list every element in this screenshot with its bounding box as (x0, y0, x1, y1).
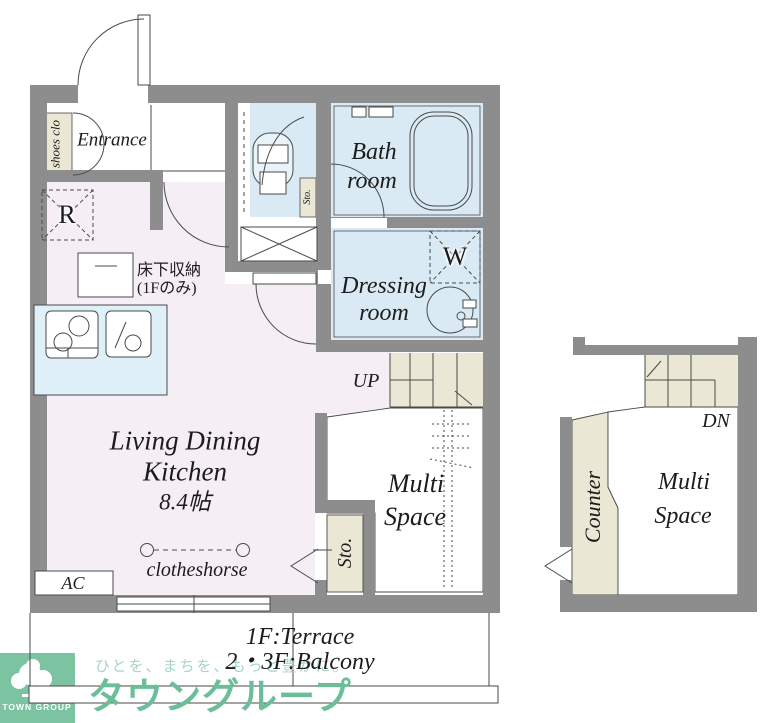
bathroom-label-1: Bath (351, 140, 396, 164)
ldk-size-label: 8.4帖 (159, 491, 211, 514)
ldk-label-1: Living Dining (110, 428, 261, 455)
logo-caption: TOWN GROUP (2, 702, 71, 712)
dressing-room-label-1: Dressing (341, 274, 427, 298)
entrance-label: Entrance (77, 131, 147, 150)
storage-closet-box (241, 227, 317, 261)
ac-label: AC (61, 574, 84, 592)
floorplan-page: ひとを、まちを、もっと豊かに。 タウングループ TOWN GROUP Entra… (0, 0, 775, 723)
dressing-room-label-2: room (359, 301, 409, 325)
ldk-label-2: Kitchen (143, 459, 227, 486)
storage-1f-label: Sto. (335, 538, 355, 569)
clotheshorse-label: clotheshorse (146, 560, 247, 580)
multi-space-1f-label-2: Space (384, 504, 446, 530)
underfloor-storage-box (78, 253, 133, 297)
refrigerator-label: R (58, 202, 75, 228)
floorplan-drawing (0, 0, 775, 723)
ldk-window (117, 595, 270, 613)
multi-space-1f-label-1: Multi (388, 471, 444, 497)
balcony-label: 2・3F:Balcony (225, 650, 374, 674)
stove-icon (46, 311, 98, 358)
terrace-label: 1F:Terrace (246, 625, 354, 649)
washer-label: W (443, 244, 468, 270)
stairs-down-label: DN (702, 411, 730, 431)
multi-space-upper-label-1: Multi (658, 470, 710, 494)
underfloor-storage-label: 床下収納 (1Fのみ) (137, 262, 201, 299)
entrance-door (78, 15, 150, 85)
multi-space-upper-label-2: Space (654, 504, 711, 528)
bathroom-label-2: room (347, 169, 397, 193)
toilet-storage-label: Sto. (303, 189, 313, 204)
multi-space-upper-floor (608, 407, 738, 595)
stairs-up-label: UP (353, 371, 380, 391)
upper-floor-unit (545, 337, 757, 612)
upper-entry-arrow (545, 549, 572, 583)
kitchen-counter (34, 305, 167, 395)
shoes-closet-label: shoes clo (49, 120, 62, 168)
counter-label: Counter (582, 471, 604, 543)
sink-icon (106, 311, 151, 357)
